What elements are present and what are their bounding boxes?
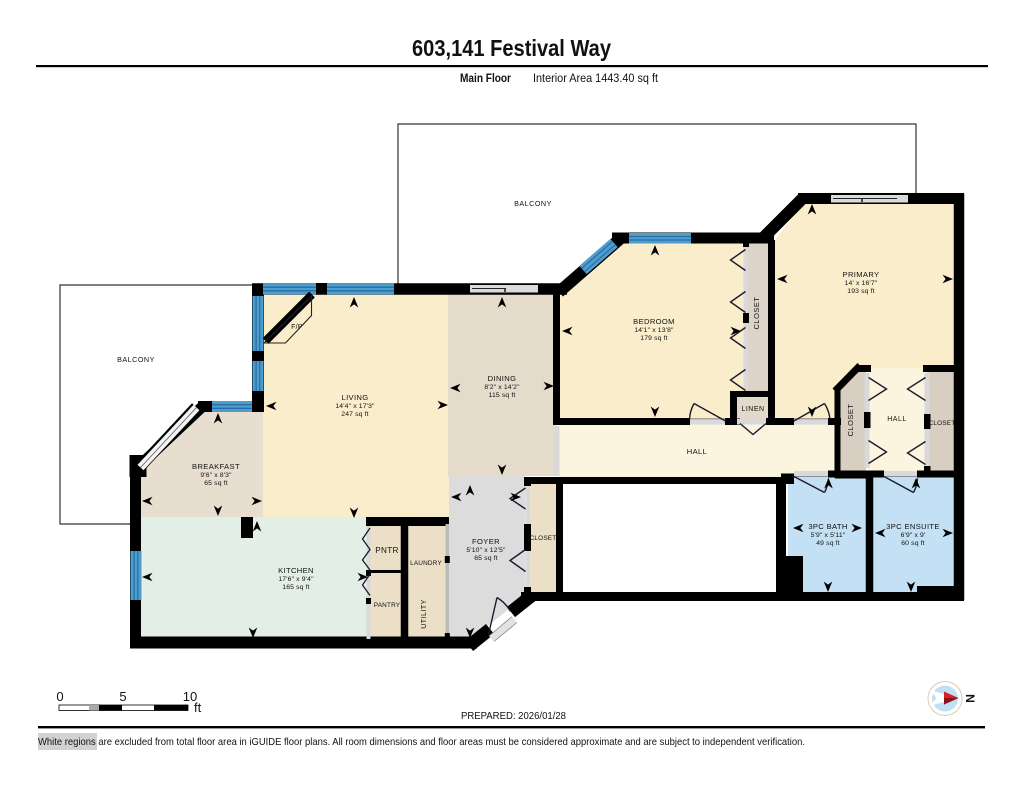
svg-text:N: N (963, 694, 977, 703)
svg-text:5: 5 (119, 689, 126, 704)
svg-text:0: 0 (56, 689, 63, 704)
svg-text:BALCONY: BALCONY (514, 199, 552, 208)
svg-text:CLOSET: CLOSET (929, 420, 956, 427)
svg-text:UTILITY: UTILITY (421, 599, 428, 629)
svg-text:CLOSET: CLOSET (530, 535, 557, 542)
svg-text:247 sq ft: 247 sq ft (341, 411, 368, 418)
svg-text:CLOSET: CLOSET (752, 296, 761, 329)
svg-text:PRIMARY: PRIMARY (843, 270, 880, 279)
svg-text:179 sq ft: 179 sq ft (640, 335, 667, 342)
svg-text:LAUNDRY: LAUNDRY (410, 560, 442, 567)
svg-text:Main Floor: Main Floor (460, 71, 511, 85)
svg-text:KITCHEN: KITCHEN (278, 566, 314, 575)
svg-text:60 sq ft: 60 sq ft (901, 540, 925, 547)
svg-text:BREAKFAST: BREAKFAST (192, 462, 240, 471)
svg-text:HALL: HALL (687, 447, 707, 456)
svg-text:CLOSET: CLOSET (846, 403, 855, 436)
svg-text:165 sq ft: 165 sq ft (282, 584, 309, 591)
svg-text:49 sq ft: 49 sq ft (816, 540, 840, 547)
svg-text:DINING: DINING (488, 374, 517, 383)
svg-text:17'6" x 9'4": 17'6" x 9'4" (278, 576, 314, 583)
svg-text:ft: ft (194, 700, 202, 715)
svg-text:65 sq ft: 65 sq ft (204, 480, 228, 487)
svg-text:LINEN: LINEN (741, 406, 764, 413)
svg-text:8'2" x 14'2": 8'2" x 14'2" (484, 384, 520, 391)
svg-text:3PC BATH: 3PC BATH (808, 522, 847, 531)
svg-text:Interior Area 1443.40 sq ft: Interior Area 1443.40 sq ft (533, 71, 659, 85)
svg-text:5'9" x 5'11": 5'9" x 5'11" (811, 532, 846, 539)
svg-text:14'4" x 17'3": 14'4" x 17'3" (335, 403, 375, 410)
svg-text:6'9" x 9': 6'9" x 9' (901, 532, 926, 539)
svg-text:9'6" x 8'3": 9'6" x 8'3" (200, 472, 232, 479)
svg-text:PNTR: PNTR (375, 546, 399, 555)
svg-text:115 sq ft: 115 sq ft (489, 392, 516, 399)
svg-text:BEDROOM: BEDROOM (633, 317, 675, 326)
svg-text:5'10" x 12'5": 5'10" x 12'5" (466, 547, 506, 554)
svg-text:65 sq ft: 65 sq ft (474, 555, 498, 562)
svg-text:3PC ENSUITE: 3PC ENSUITE (886, 522, 940, 531)
svg-text:PANTRY: PANTRY (374, 602, 401, 609)
svg-text:HALL: HALL (887, 416, 907, 423)
svg-text:FOYER: FOYER (472, 537, 500, 546)
svg-text:603,141 Festival Way: 603,141 Festival Way (412, 35, 611, 61)
svg-text:193 sq ft: 193 sq ft (847, 288, 874, 295)
svg-text:14' x 16'7": 14' x 16'7" (845, 280, 878, 287)
svg-text:LIVING: LIVING (342, 393, 369, 402)
svg-text:F/P: F/P (291, 324, 303, 331)
svg-text:14'1" x 13'8": 14'1" x 13'8" (634, 327, 674, 334)
svg-text:BALCONY: BALCONY (117, 355, 155, 364)
svg-text:White regions are excluded fro: White regions are excluded from total fl… (38, 737, 805, 748)
svg-text:PREPARED: 2026/01/28: PREPARED: 2026/01/28 (461, 711, 566, 722)
